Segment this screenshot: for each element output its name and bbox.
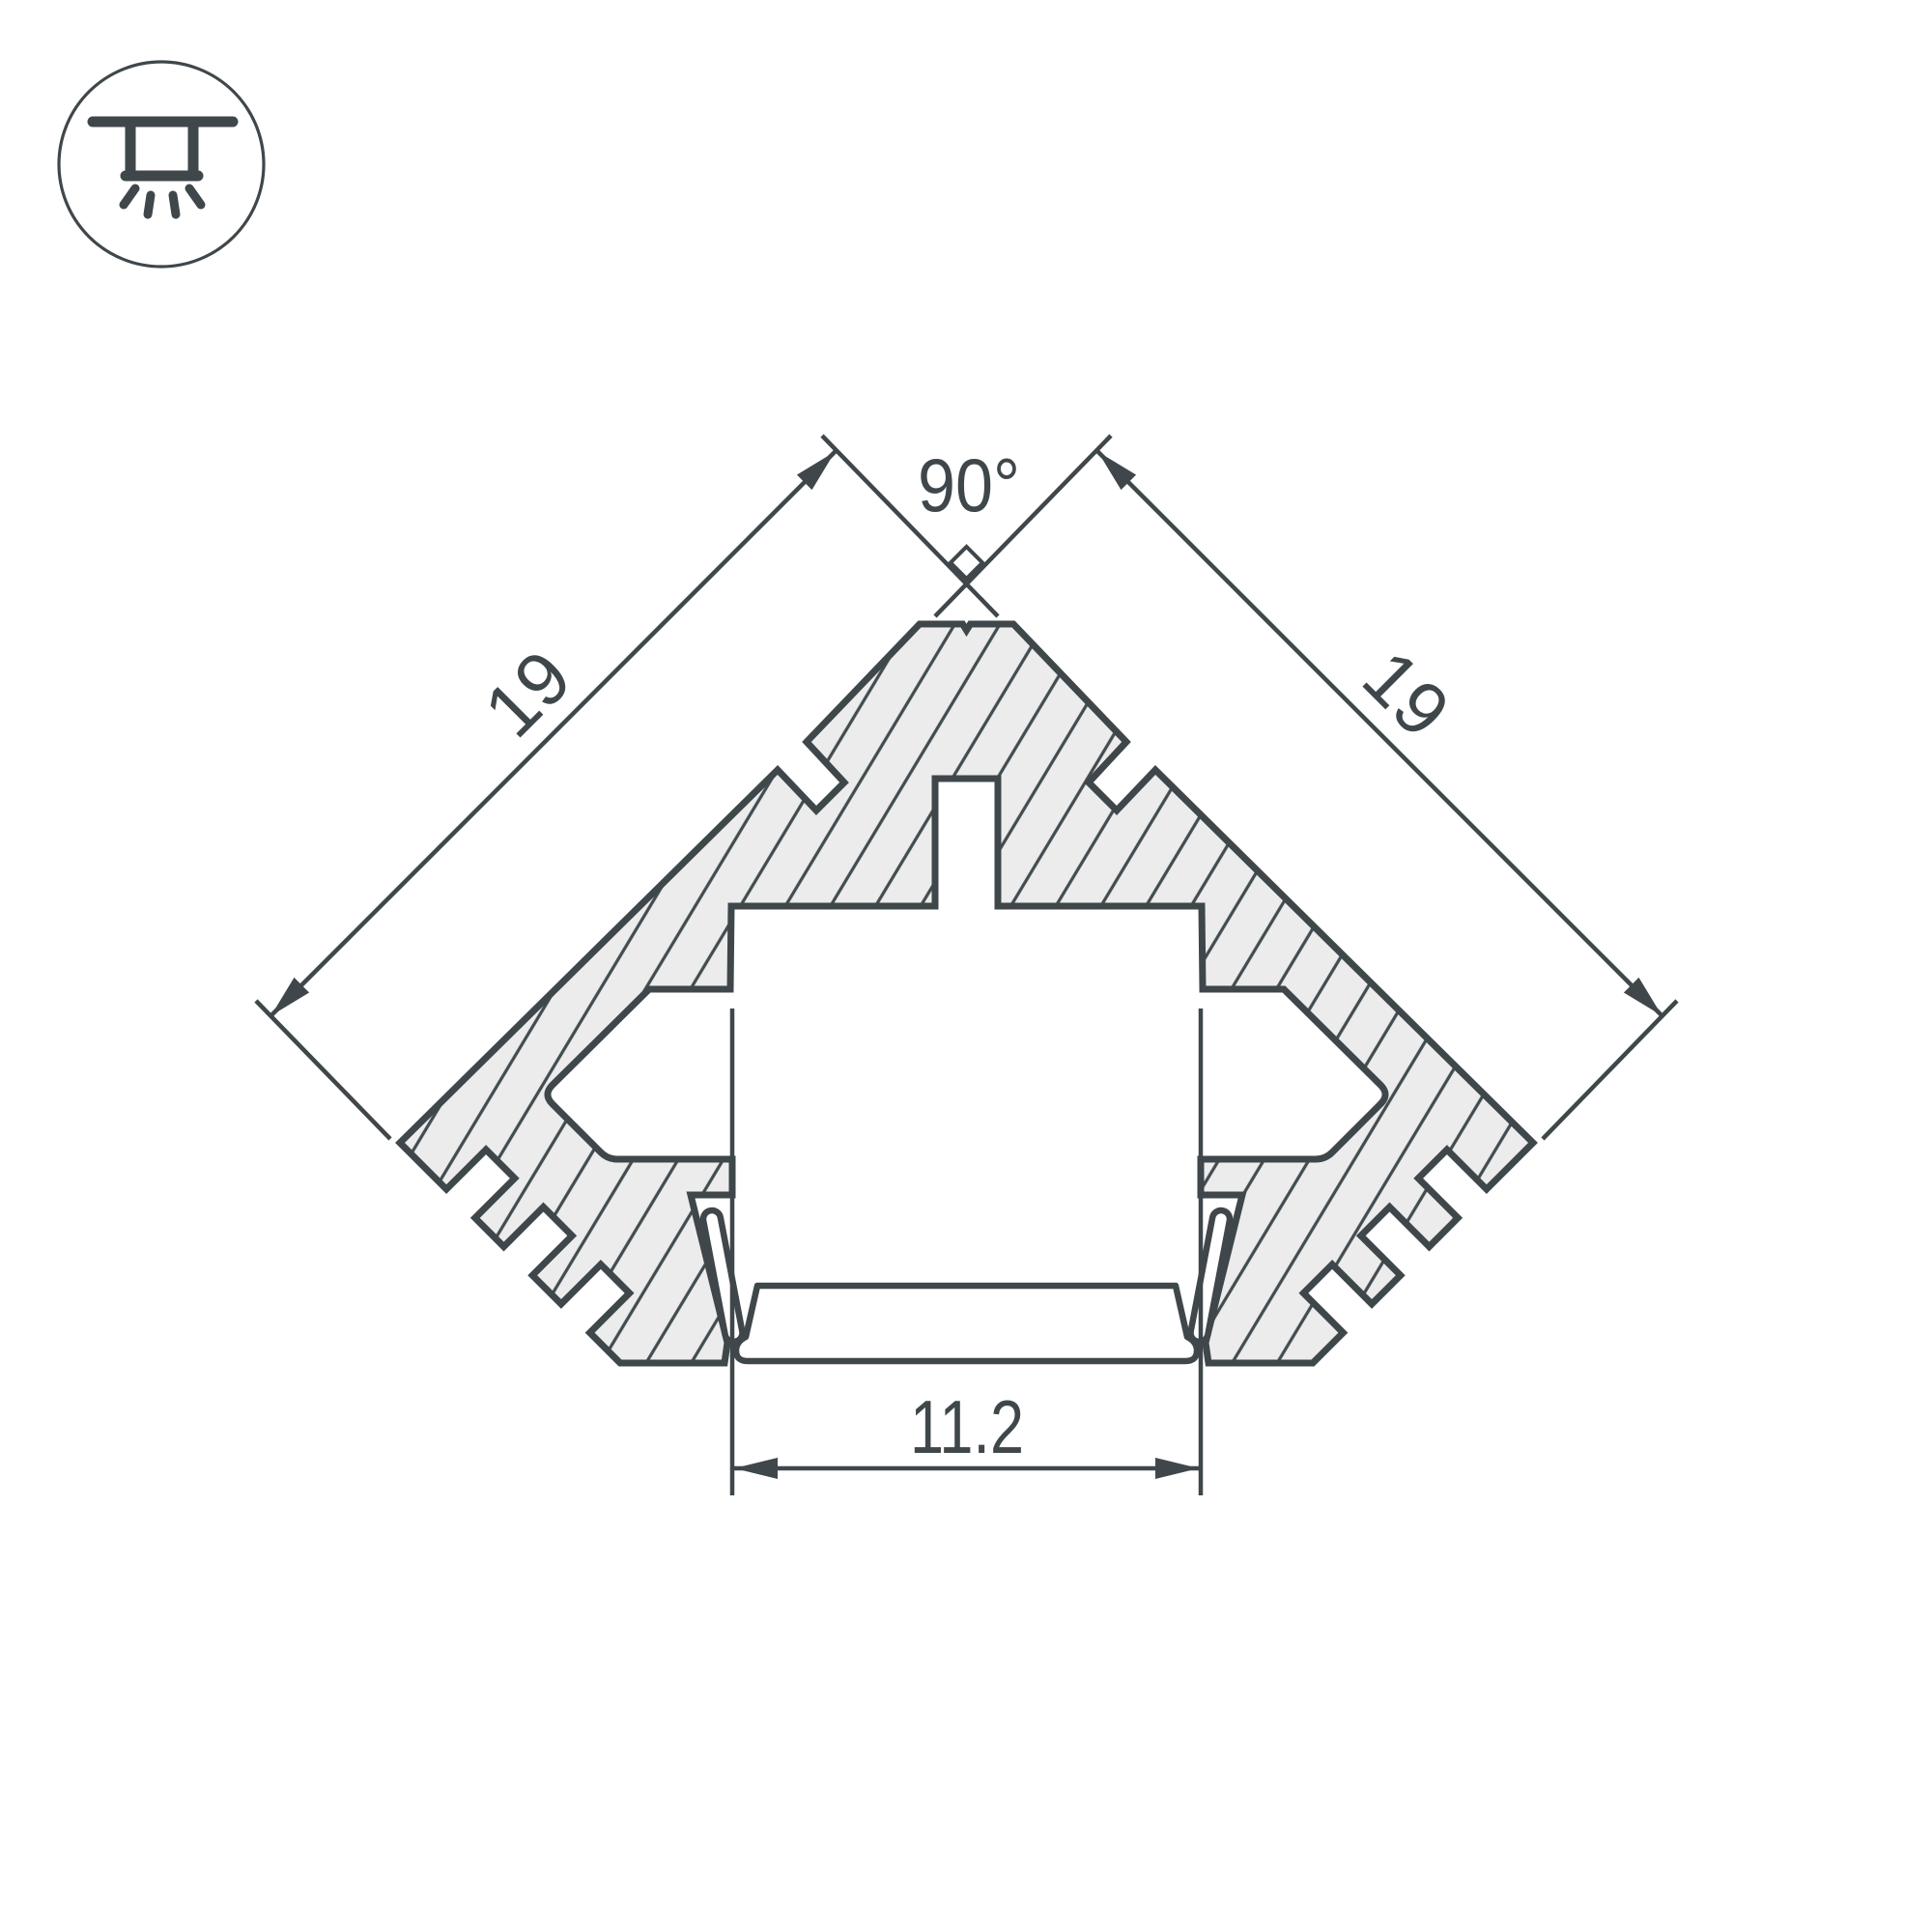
- svg-text:11.2: 11.2: [910, 1384, 1024, 1469]
- svg-text:90°: 90°: [918, 442, 1020, 527]
